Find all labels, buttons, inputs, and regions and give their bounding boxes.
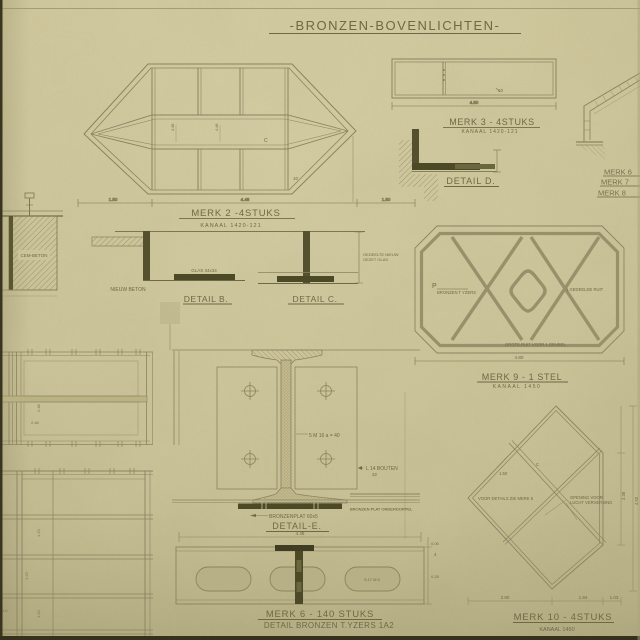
svg-text:LUCHT VERVERSING: LUCHT VERVERSING [570,500,612,505]
svg-text:MERK 8: MERK 8 [598,189,626,198]
svg-text:DETAIL B.: DETAIL B. [184,294,229,304]
svg-text:4.50: 4.50 [470,100,479,105]
svg-text:DETAIL BRONZEN T.YZERS 1A2: DETAIL BRONZEN T.YZERS 1A2 [264,621,394,630]
svg-text:1.03: 1.03 [610,595,619,600]
svg-text:0.28: 0.28 [431,574,440,579]
svg-text:1.50: 1.50 [109,197,118,202]
svg-text:DETAIL-E.: DETAIL-E. [272,521,322,531]
svg-text:2.48: 2.48 [31,420,40,425]
svg-text:1.0: 1.0 [2,608,8,613]
svg-text:1.50: 1.50 [499,471,508,476]
svg-text:MERK 6: MERK 6 [604,168,632,177]
svg-text:0.06: 0.06 [431,541,440,546]
svg-text:MERK 7: MERK 7 [601,178,629,187]
svg-text:MERK 9 - 1 STEL: MERK 9 - 1 STEL [482,372,563,382]
svg-text:4.48: 4.48 [241,197,250,202]
svg-text:1.20: 1.20 [36,528,41,537]
svg-text:P: P [432,283,437,290]
svg-text:10: 10 [293,176,299,181]
svg-text:10: 10 [498,88,504,93]
svg-text:DETAIL D.: DETAIL D. [446,176,495,186]
svg-text:4.48: 4.48 [171,124,175,131]
svg-text:KANAAL 1420-121: KANAAL 1420-121 [200,223,261,229]
svg-text:CEM-BETON: CEM-BETON [21,253,48,258]
svg-text:2.38: 2.38 [621,491,626,500]
svg-text:5.17 M 6: 5.17 M 6 [364,577,380,582]
svg-text:2.48: 2.48 [36,403,41,412]
svg-text:L 14 BOUTEN: L 14 BOUTEN [366,466,398,472]
svg-text:KANAAL 1450: KANAAL 1450 [493,384,542,390]
svg-text:1.20: 1.20 [36,609,41,618]
svg-text:32: 32 [372,472,378,477]
svg-text:KANAAL 1450: KANAAL 1450 [539,627,574,633]
svg-text:GEZET GLAS: GEZET GLAS [363,257,388,262]
svg-text:-BRONZEN-BOVENLICHTEN-: -BRONZEN-BOVENLICHTEN- [290,18,501,33]
svg-text:NIEUW BETON: NIEUW BETON [110,287,146,293]
svg-text:VOOR DETAILS ZIE MERK 6: VOOR DETAILS ZIE MERK 6 [478,496,534,501]
svg-text:MERK 2 -4STUKS: MERK 2 -4STUKS [191,208,280,219]
svg-text:2.80: 2.80 [501,595,510,600]
svg-text:BRONZENPLAT 60x5: BRONZENPLAT 60x5 [269,514,318,520]
svg-text:1 GEDEELDE RUIT: 1 GEDEELDE RUIT [566,287,604,292]
svg-text:GLAS 34x34: GLAS 34x34 [191,268,217,273]
svg-text:C: C [264,138,268,144]
svg-text:4.48: 4.48 [296,531,305,536]
svg-text:MERK 3 - 4STUKS: MERK 3 - 4STUKS [449,117,535,127]
svg-text:4.80: 4.80 [515,355,524,360]
svg-text:BRONZEN T YZERS: BRONZEN T YZERS [437,290,476,295]
svg-text:5 M 16 a = 40: 5 M 16 a = 40 [309,433,340,439]
svg-text:GROTE RUIT VOOR 1 GEHEEL: GROTE RUIT VOOR 1 GEHEEL [505,342,567,347]
svg-text:MERK 6 - 140 STUKS: MERK 6 - 140 STUKS [266,609,374,620]
svg-text:1.50: 1.50 [382,197,391,202]
svg-text:DETAIL C.: DETAIL C. [292,294,337,304]
svg-text:1.84: 1.84 [579,595,588,600]
svg-text:4.48: 4.48 [215,124,219,131]
svg-text:MERK 10 - 4STUKS: MERK 10 - 4STUKS [514,612,613,623]
svg-text:BRONZEN PLAT ONDERDORPEL: BRONZEN PLAT ONDERDORPEL [350,507,413,512]
svg-text:KANAAL 1420-121: KANAAL 1420-121 [461,129,518,135]
svg-text:1.20: 1.20 [24,571,29,580]
svg-text:C: C [536,462,539,467]
